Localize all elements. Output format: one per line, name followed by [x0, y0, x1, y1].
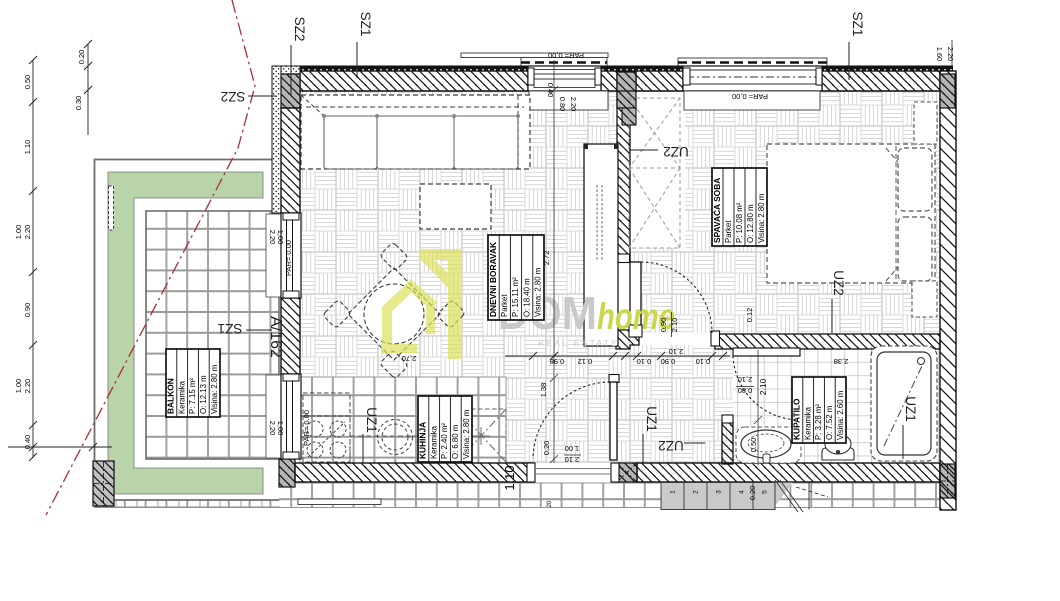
svg-text:Visina: 2.60 m: Visina: 2.60 m: [836, 391, 845, 440]
svg-text:PAR= 0.00: PAR= 0.00: [302, 410, 311, 446]
svg-text:P: 3.28 m²: P: 3.28 m²: [814, 404, 823, 440]
svg-text:0.90: 0.90: [661, 357, 676, 366]
svg-text:0.10: 0.10: [637, 357, 652, 366]
svg-text:2,38: 2,38: [834, 357, 849, 366]
svg-text:1.00: 1.00: [565, 444, 580, 453]
svg-text:SPAVAĆA SOBA: SPAVAĆA SOBA: [711, 178, 722, 243]
svg-text:1.00: 1.00: [14, 225, 23, 240]
svg-text:SZ1: SZ1: [358, 12, 373, 37]
svg-text:REAL ESTATE: REAL ESTATE: [538, 339, 619, 348]
svg-text:2.10: 2.10: [758, 378, 768, 395]
svg-text:0.90: 0.90: [659, 318, 668, 333]
svg-text:0.90: 0.90: [23, 303, 32, 318]
svg-text:2,20: 2,20: [268, 421, 277, 436]
svg-text:0.12: 0.12: [578, 357, 593, 366]
svg-text:BALKON: BALKON: [166, 378, 176, 414]
svg-text:0.40: 0.40: [546, 83, 555, 98]
svg-text:0.12: 0.12: [745, 308, 754, 323]
svg-text:Keramika: Keramika: [177, 380, 186, 414]
svg-text:2,70: 2,70: [402, 354, 417, 363]
svg-text:5: 5: [762, 490, 769, 494]
svg-text:0.80: 0.80: [558, 97, 567, 112]
svg-text:2.72: 2.72: [542, 251, 551, 266]
svg-text:UZ2: UZ2: [831, 270, 846, 296]
svg-text:O: 18.40 m: O: 18.40 m: [522, 278, 531, 317]
svg-text:PAR= 0,00: PAR= 0,00: [732, 92, 768, 101]
svg-text:1.38: 1.38: [539, 383, 548, 398]
svg-text:P: 2.40 m²: P: 2.40 m²: [440, 423, 449, 459]
svg-text:A/162: A/162: [267, 316, 284, 358]
svg-text:4: 4: [739, 490, 746, 494]
svg-text:P: 7.15 m²: P: 7.15 m²: [188, 378, 197, 414]
svg-text:0.20: 0.20: [77, 50, 86, 65]
svg-text:P: 10.08 m²: P: 10.08 m²: [735, 202, 744, 243]
svg-text:2,20: 2,20: [268, 230, 277, 245]
svg-text:0.50: 0.50: [749, 438, 758, 453]
svg-text:UZ1: UZ1: [364, 407, 379, 433]
svg-text:Visina: 2.80 m: Visina: 2.80 m: [757, 194, 766, 243]
svg-text:UZ2: UZ2: [663, 144, 689, 159]
svg-text:KUHINJA: KUHINJA: [418, 422, 428, 459]
svg-text:Keramika: Keramika: [803, 406, 812, 440]
svg-text:UZ1: UZ1: [903, 396, 918, 422]
svg-text:3: 3: [716, 490, 723, 494]
svg-text:UZ1: UZ1: [644, 406, 659, 432]
svg-text:1,00: 1,00: [276, 230, 285, 245]
svg-text:1.00: 1.00: [14, 379, 23, 394]
svg-text:PAR= 0,00: PAR= 0,00: [548, 51, 584, 60]
svg-text:Visina: 2.80 m: Visina: 2.80 m: [210, 365, 219, 414]
svg-text:0.30: 0.30: [74, 96, 83, 111]
svg-text:2.20: 2.20: [946, 47, 955, 62]
svg-text:0.50: 0.50: [23, 75, 32, 90]
svg-text:2: 2: [693, 490, 700, 494]
svg-text:0.10: 0.10: [696, 357, 711, 366]
svg-text:Parket: Parket: [500, 294, 509, 317]
svg-text:KUPATILO: KUPATILO: [792, 398, 802, 440]
svg-text:Parket: Parket: [724, 220, 733, 243]
svg-text:UZ2: UZ2: [658, 438, 684, 453]
svg-text:SZ1: SZ1: [850, 12, 865, 37]
svg-text:O: 6.80 m: O: 6.80 m: [451, 425, 460, 459]
svg-text:2.20: 2.20: [23, 379, 32, 394]
svg-text:1.60: 1.60: [935, 47, 944, 62]
svg-text:2,10: 2,10: [669, 347, 684, 356]
svg-text:2.10: 2.10: [565, 455, 580, 464]
svg-text:0.80: 0.80: [738, 386, 753, 395]
svg-text:O: 12.80 m: O: 12.80 m: [746, 204, 755, 243]
svg-text:1.10: 1.10: [23, 140, 32, 155]
svg-text:1: 1: [670, 490, 677, 494]
svg-text:O: 12.13 m: O: 12.13 m: [199, 375, 208, 414]
svg-text:SZ1: SZ1: [218, 321, 243, 336]
svg-text:2.20: 2.20: [569, 97, 578, 112]
svg-text:P: 15.11 m²: P: 15.11 m²: [511, 277, 520, 317]
svg-text:2,10: 2,10: [738, 375, 753, 384]
svg-text:2.20: 2.20: [23, 225, 32, 240]
svg-text:1.10: 1.10: [502, 465, 517, 490]
svg-text:0.20: 0.20: [542, 441, 551, 456]
svg-text:Visina: 2.80 m: Visina: 2.80 m: [462, 410, 471, 459]
svg-text:O: 7.52 m: O: 7.52 m: [825, 406, 834, 440]
svg-text:DNEVNI BORAVAK: DNEVNI BORAVAK: [488, 242, 498, 317]
svg-text:SZ2: SZ2: [292, 17, 307, 42]
svg-text:SZ2: SZ2: [221, 89, 246, 104]
svg-text:Visina: 2.80 m: Visina: 2.80 m: [534, 268, 543, 317]
svg-text:0.98: 0.98: [550, 357, 565, 366]
svg-text:20: 20: [547, 500, 553, 507]
svg-text:Keramika: Keramika: [429, 425, 438, 459]
svg-text:0.20: 0.20: [748, 486, 757, 501]
svg-text:PAR= 0.00: PAR= 0.00: [284, 240, 293, 276]
svg-text:1,00: 1,00: [276, 421, 285, 436]
